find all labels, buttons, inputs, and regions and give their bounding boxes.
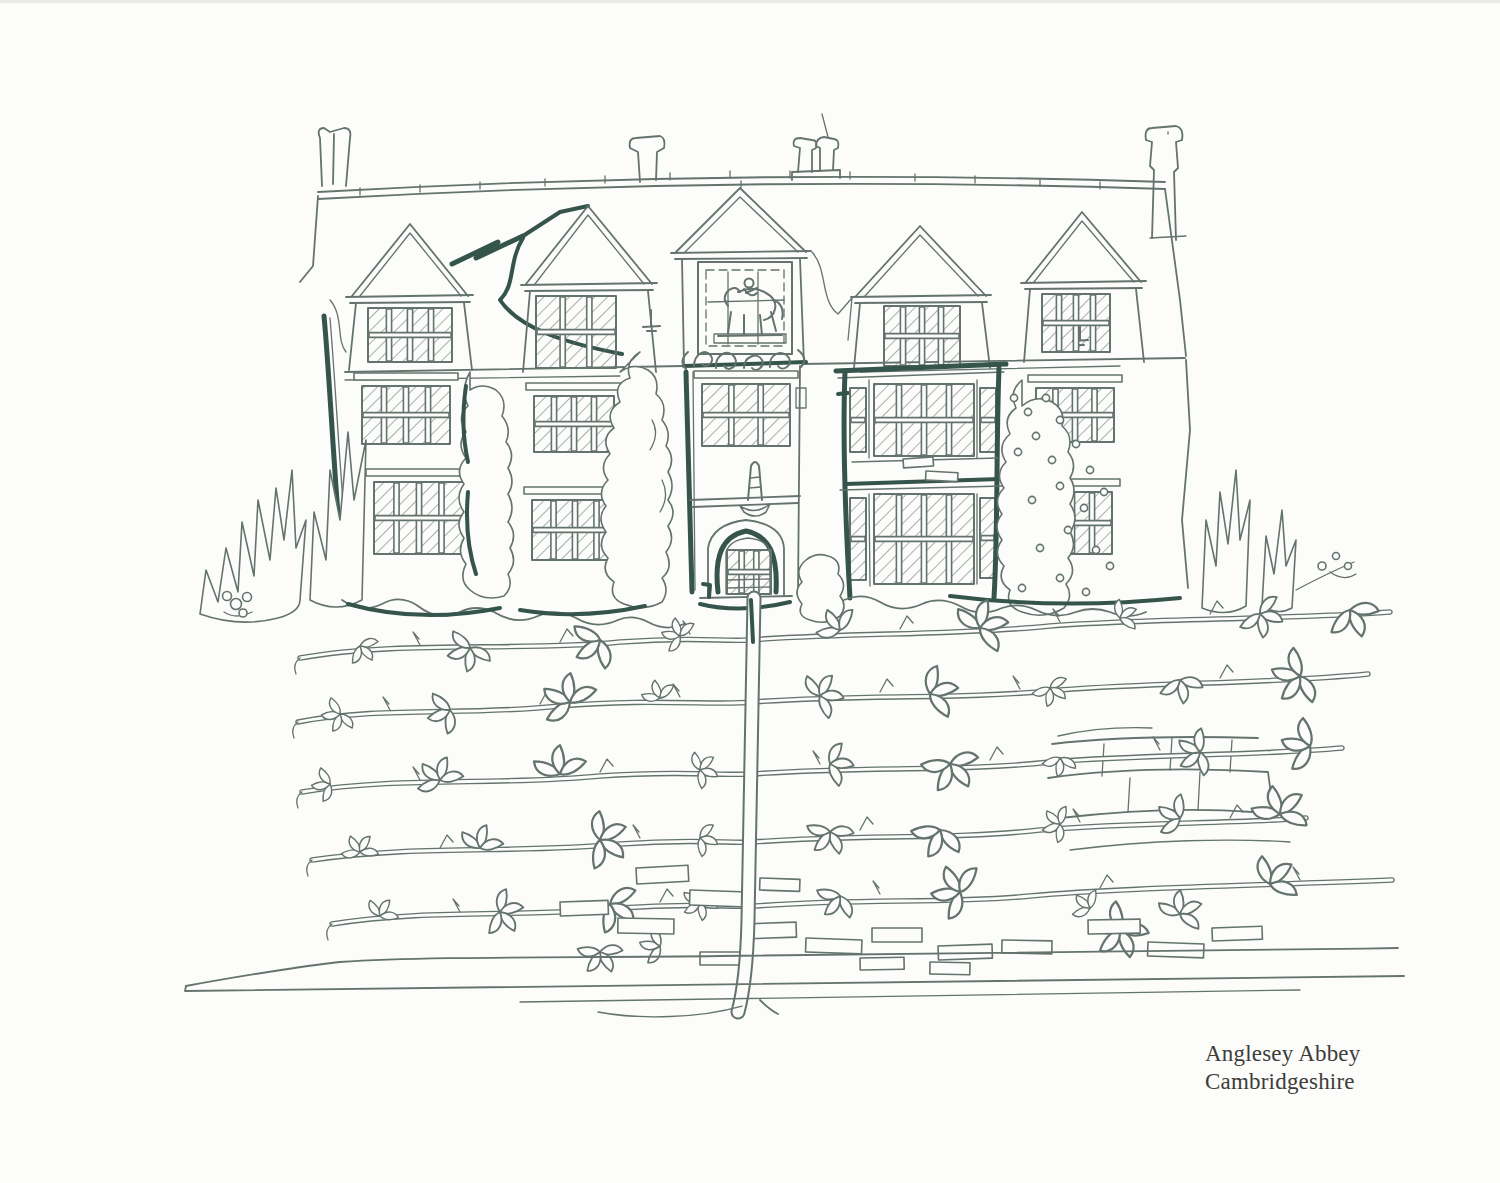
espalier-garden [185, 594, 1404, 1017]
facade-vine-left [459, 372, 514, 598]
chimney-twin-pots [792, 114, 840, 180]
caption-title: Anglesey Abbey [1205, 1040, 1360, 1068]
window [354, 373, 458, 444]
espalier-branch-tiers [293, 594, 1392, 974]
window [884, 306, 960, 366]
window [980, 388, 996, 452]
espalier-branch-tier-4 [307, 818, 1306, 876]
espalier-trunk [598, 598, 778, 1017]
window [1042, 294, 1110, 352]
caption-subtitle: Cambridgeshire [1205, 1068, 1360, 1096]
anglesey-abbey-line-drawing [0, 0, 1500, 1183]
chimney-left [319, 128, 351, 186]
window [980, 498, 995, 578]
right-shrubs [1202, 470, 1356, 613]
window [694, 371, 798, 446]
window [536, 296, 616, 368]
window [366, 469, 472, 554]
scattered-bricks [560, 865, 1262, 974]
bay-spandrel-bricks [903, 457, 958, 482]
window [850, 498, 866, 580]
chimney-mid-left [630, 136, 665, 182]
caption: Anglesey Abbey Cambridgeshire [1205, 1040, 1360, 1096]
equestrian-relief-panel [698, 262, 792, 354]
obelisk-finial [740, 462, 770, 516]
window [850, 388, 866, 452]
window [368, 308, 452, 362]
horse-and-rider-figure [714, 279, 786, 344]
ground-line [185, 948, 1404, 1002]
wall-anchor-marks [643, 310, 1088, 345]
window [874, 384, 974, 456]
left-shrubs [200, 432, 366, 622]
window [874, 494, 974, 584]
sketch-page: Anglesey Abbey Cambridgeshire [0, 0, 1500, 1183]
chimney-right [1146, 126, 1186, 240]
